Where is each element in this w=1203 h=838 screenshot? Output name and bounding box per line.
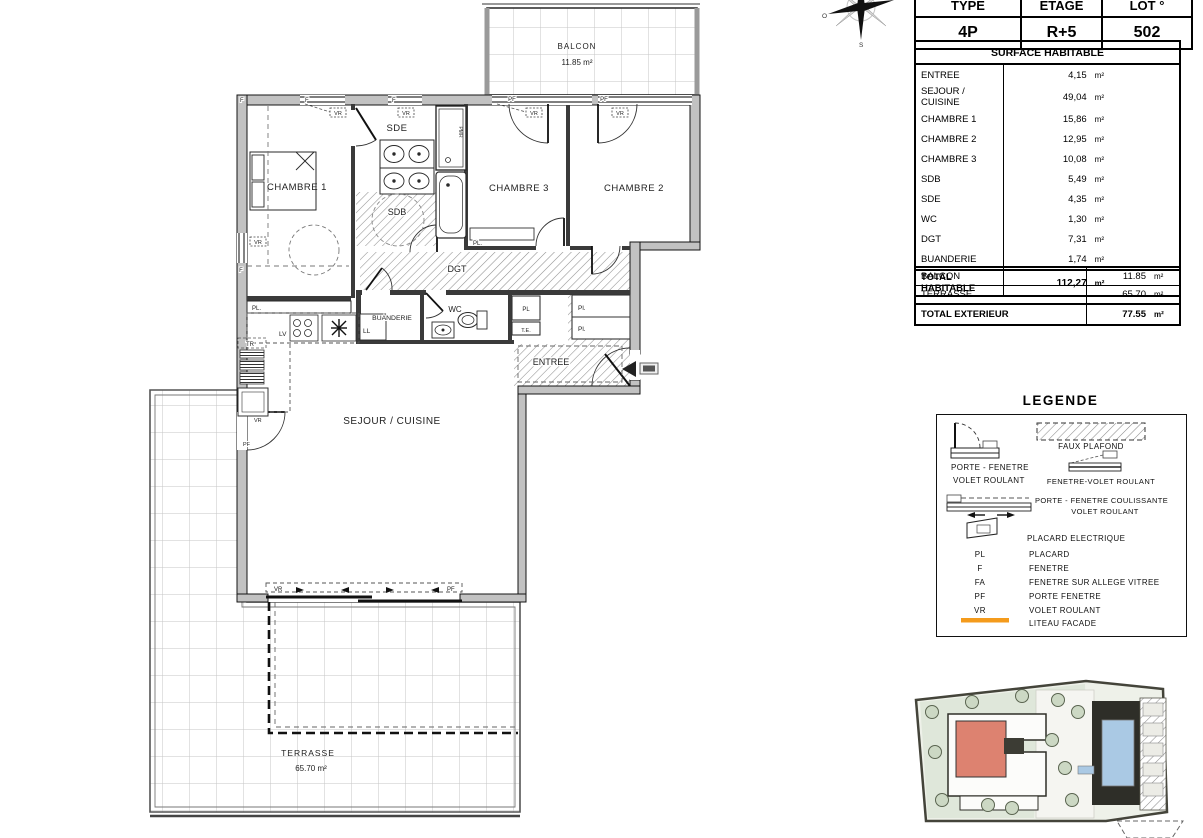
- legend-label: PLACARD ELECTRIQUE: [1027, 534, 1125, 543]
- row-unit: m²: [1151, 267, 1180, 286]
- sde-vanity: [380, 140, 434, 168]
- legend-label: FENETRE SUR ALLEGE VITREE: [1029, 578, 1159, 587]
- dgt-hatch: [360, 252, 630, 290]
- shower-tag-pmr: PMR: [457, 126, 463, 138]
- legend-key: F: [965, 564, 995, 573]
- bed: [250, 152, 316, 210]
- compass-west-label: O: [822, 13, 827, 20]
- legend-label: PORTE - FENETRE: [951, 463, 1029, 472]
- table-row: CHAMBRE 310,08m²: [915, 149, 1180, 169]
- table-row: BALCON 11.85 m²: [915, 267, 1180, 286]
- tag-lv: LV: [279, 331, 287, 338]
- legend-label: FENETRE-VOLET ROULANT: [1041, 477, 1161, 486]
- window-tag-vr: VR: [530, 111, 538, 117]
- floorplan-sheet: TERRASSE 65.70 m² BALCON 11.85 m²: [0, 0, 1203, 838]
- row-value: 10,08: [1003, 149, 1091, 169]
- room-label-dgt: DGT: [448, 264, 468, 274]
- legend-key: FA: [965, 578, 995, 587]
- row-value: 12,95: [1003, 129, 1091, 149]
- row-value: 4,35: [1003, 189, 1091, 209]
- legend-key: PL: [965, 550, 995, 559]
- row-name: SDB: [915, 169, 1003, 189]
- window-tag-pf: PF: [447, 587, 455, 593]
- row-name: CHAMBRE 2: [915, 129, 1003, 149]
- row-name: ENTREE: [915, 64, 1003, 85]
- row-unit: m²: [1092, 169, 1180, 189]
- room-label-entree: ENTREE: [533, 357, 570, 367]
- cooktop: [290, 315, 318, 341]
- row-unit: m²: [1092, 149, 1180, 169]
- row-unit: m²: [1092, 109, 1180, 129]
- exterior-table: BALCON 11.85 m² TERRASSE 65.70 m² TOTAL …: [914, 266, 1181, 326]
- row-name: CHAMBRE 1: [915, 109, 1003, 129]
- table-row: WC1,30m²: [915, 209, 1180, 229]
- room-label-chambre3: CHAMBRE 3: [489, 183, 549, 194]
- row-unit: m²: [1092, 209, 1180, 229]
- lot-header-labels-row: TYPE ETAGE LOT °: [915, 0, 1192, 17]
- table-row: TERRASSE 65.70 m²: [915, 286, 1180, 305]
- table-row: SEJOUR / CUISINE49,04m²: [915, 85, 1180, 109]
- balcony-area: 11.85 m²: [562, 58, 593, 67]
- legend-label: FENETRE: [1029, 564, 1069, 573]
- compass-south-label: S: [859, 42, 864, 49]
- legend-key: PF: [965, 592, 995, 601]
- total-value: 77.55: [1087, 304, 1152, 325]
- room-label-chambre1: CHAMBRE 1: [267, 182, 327, 193]
- liteau-facade-line: [961, 618, 1009, 623]
- faux-plafond-swatch: [1037, 423, 1145, 440]
- row-value: 1,30: [1003, 209, 1091, 229]
- legend-label: LITEAU FACADE: [1029, 619, 1096, 628]
- row-value: 15,86: [1003, 109, 1091, 129]
- total-unit: m²: [1151, 304, 1180, 325]
- total-name: TOTAL EXTERIEUR: [915, 304, 1087, 325]
- row-name: SEJOUR / CUISINE: [915, 85, 1003, 109]
- window-tag-vr: VR: [274, 587, 283, 593]
- window-tag-f: F: [240, 98, 244, 104]
- tag-pl: PL.: [473, 241, 482, 247]
- fenetre-volet-icon: [1069, 451, 1121, 471]
- tag-tr: TR: [246, 342, 255, 348]
- window-tag-f: F: [239, 268, 243, 274]
- legend-label: VOLET ROULANT: [1035, 507, 1175, 516]
- window-tag-pf: PF: [600, 97, 608, 103]
- row-name: WC: [915, 209, 1003, 229]
- table-row: DGT7,31m²: [915, 229, 1180, 249]
- porte-fenetre-icon: [951, 423, 999, 458]
- bathtub: [436, 172, 466, 238]
- row-unit: m²: [1092, 64, 1180, 85]
- room-label-buanderie: BUANDERIE: [372, 315, 412, 322]
- shower: PMR: [436, 106, 466, 170]
- row-unit: m²: [1092, 129, 1180, 149]
- room-label-chambre2: CHAMBRE 2: [604, 183, 664, 194]
- legend-label: VOLET ROULANT: [1029, 606, 1101, 615]
- col-type-label: TYPE: [915, 0, 1021, 17]
- tag-pl: PL.: [252, 306, 261, 312]
- window-tag-vr: VR: [254, 240, 262, 246]
- porte-fenetre-coulissante-icon: [947, 495, 1031, 518]
- legend-box: PORTE - FENETRE VOLET ROULANT FAUX PLAFO…: [936, 414, 1187, 637]
- row-unit: m²: [1092, 229, 1180, 249]
- site-unit-highlight: [956, 721, 1006, 777]
- sdb-vanity: [380, 168, 434, 194]
- compass-rose: O S: [822, 0, 894, 49]
- balcony-label: BALCON: [558, 42, 597, 51]
- fridge-snowflake-icon: [331, 319, 347, 337]
- legend-label: VOLET ROULANT: [953, 476, 1025, 485]
- chambre3-closet: [470, 228, 534, 240]
- total-exterieur-row: TOTAL EXTERIEUR 77.55 m²: [915, 304, 1180, 325]
- tag-pl-cap: Pl.: [578, 326, 586, 333]
- row-value: 5,49: [1003, 169, 1091, 189]
- col-lot-label: LOT °: [1102, 0, 1192, 17]
- terrace-area: 65.70 m²: [295, 764, 327, 773]
- row-name: SDE: [915, 189, 1003, 209]
- window-tag-vr: VR: [402, 111, 410, 117]
- surface-section-header: SURFACE HABITABLE: [915, 41, 1180, 64]
- terrace-label: TERRASSE: [281, 748, 335, 758]
- row-value: 65.70: [1087, 286, 1152, 305]
- room-label-sde: SDE: [386, 123, 407, 134]
- window-tag-pf: PF: [508, 97, 516, 103]
- row-name: BALCON: [915, 267, 1087, 286]
- row-unit: m²: [1092, 85, 1180, 109]
- site-pool: [1102, 720, 1134, 786]
- tag-te: T.E.: [521, 328, 531, 334]
- site-plan: [916, 681, 1183, 838]
- window-tag-f: F: [392, 98, 396, 104]
- room-label-sdb: SDB: [388, 207, 407, 217]
- row-name: TERRASSE: [915, 286, 1087, 305]
- legend-title: LEGENDE: [936, 393, 1185, 408]
- tag-ll: LL: [363, 328, 371, 335]
- row-name: DGT: [915, 229, 1003, 249]
- row-unit: m²: [1092, 189, 1180, 209]
- legend-label: PORTE - FENETRE COULISSANTE: [1035, 496, 1168, 505]
- legend-label: PLACARD: [1029, 550, 1070, 559]
- row-value: 4,15: [1003, 64, 1091, 85]
- legend-label: PORTE FENETRE: [1029, 592, 1101, 601]
- row-value: 7,31: [1003, 229, 1091, 249]
- legend-label: FAUX PLAFOND: [1037, 442, 1145, 451]
- table-row: CHAMBRE 212,95m²: [915, 129, 1180, 149]
- table-row: SDE4,35m²: [915, 189, 1180, 209]
- surface-section-title: SURFACE HABITABLE: [915, 41, 1180, 64]
- balcony: BALCON 11.85 m²: [482, 4, 700, 95]
- window-tag-f: F: [305, 98, 309, 104]
- site-driveway: [1117, 821, 1183, 838]
- table-row: SDB5,49m²: [915, 169, 1180, 189]
- row-unit: m²: [1151, 286, 1180, 305]
- col-etage-label: ETAGE: [1021, 0, 1102, 17]
- placard-electrique-icon: [967, 518, 997, 538]
- window-tag-vr: VR: [254, 418, 262, 424]
- row-value: 49,04: [1003, 85, 1091, 109]
- surface-habitable-table: SURFACE HABITABLE ENTREE4,15m² SEJOUR / …: [914, 40, 1181, 297]
- window-tag-vr: VR: [334, 111, 342, 117]
- window-tag-pf: PF: [243, 442, 251, 448]
- table-row: CHAMBRE 115,86m²: [915, 109, 1180, 129]
- room-label-wc: WC: [448, 305, 462, 314]
- row-value: 11.85: [1087, 267, 1152, 286]
- tag-pl-cap: Pl.: [578, 305, 586, 312]
- room-label-sejour: SEJOUR / CUISINE: [343, 416, 440, 427]
- row-name: CHAMBRE 3: [915, 149, 1003, 169]
- legend-key: VR: [965, 606, 995, 615]
- table-row: ENTREE4,15m²: [915, 64, 1180, 85]
- tag-pl: PL: [522, 307, 530, 313]
- window-tag-vr: VR: [616, 111, 624, 117]
